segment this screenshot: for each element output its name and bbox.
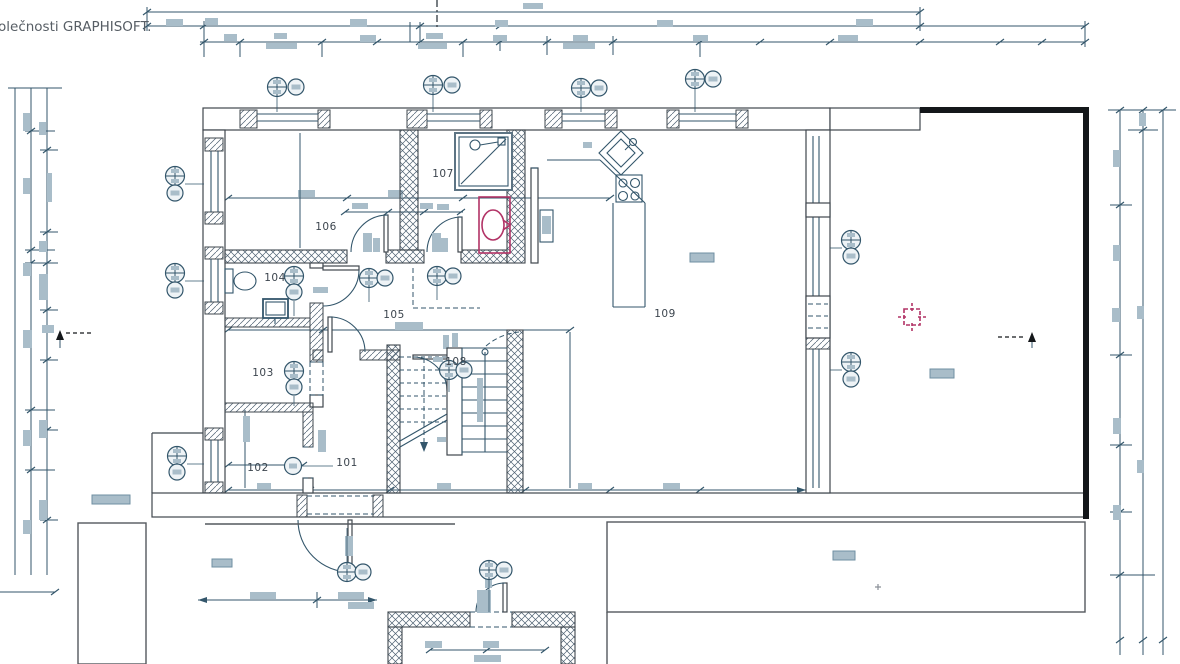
stair-walk-arrow <box>420 442 428 452</box>
floor-plan-drawing: 101 102 103 104 105 106 107 108 109 oleč… <box>0 0 1180 664</box>
staircase <box>400 332 519 455</box>
door-leaf-104 <box>323 266 359 270</box>
room-label-109: 109 <box>654 308 676 320</box>
dimension-chain-left <box>8 88 94 575</box>
window-marker-sill <box>288 79 304 95</box>
kitchen-counter <box>531 131 645 307</box>
toilet <box>225 269 256 293</box>
watermark-text: olečnosti GRAPHISOFT. <box>0 19 151 35</box>
dimension-chain-bottom <box>0 589 377 609</box>
door-marker <box>360 269 379 288</box>
kitchen-sink <box>599 131 643 175</box>
section-arrow-right <box>998 332 1036 348</box>
hotspot-marker <box>898 303 926 331</box>
door-swing-101 <box>330 317 365 352</box>
room-label-107: 107 <box>432 168 454 180</box>
room-label-104: 104 <box>264 272 286 284</box>
room-label-106: 106 <box>315 221 337 233</box>
dimension-chain-top <box>143 0 1089 57</box>
door-leaf-cellar <box>503 583 507 612</box>
dimension-text-placeholders-right <box>1112 113 1146 520</box>
boiler <box>479 197 510 253</box>
cellar-entry-structure <box>388 568 575 664</box>
door-leaf-101 <box>328 317 332 352</box>
room-number-bubble-101 <box>285 458 334 475</box>
door-leaf-106 <box>384 215 388 252</box>
door-swing-104 <box>323 270 359 306</box>
shower <box>455 133 512 190</box>
door-leaf-107 <box>458 217 462 252</box>
curtain-wall-top <box>920 107 1088 113</box>
room-label-108: 108 <box>445 356 467 368</box>
window-marker <box>268 78 287 97</box>
stair-handrail <box>477 378 483 422</box>
room-label-101: 101 <box>336 457 358 469</box>
section-arrow-left <box>56 330 94 348</box>
room-label-103: 103 <box>252 367 274 379</box>
room-label-102: 102 <box>247 462 269 474</box>
plus-mark <box>875 584 881 590</box>
curtain-wall-right <box>1083 107 1089 519</box>
floor-plan-canvas[interactable]: 101 102 103 104 105 106 107 108 109 oleč… <box>0 0 1180 664</box>
terrace-outlines <box>78 522 1085 664</box>
dimension-text-placeholders-left <box>23 113 54 534</box>
room-label-105: 105 <box>383 309 405 321</box>
